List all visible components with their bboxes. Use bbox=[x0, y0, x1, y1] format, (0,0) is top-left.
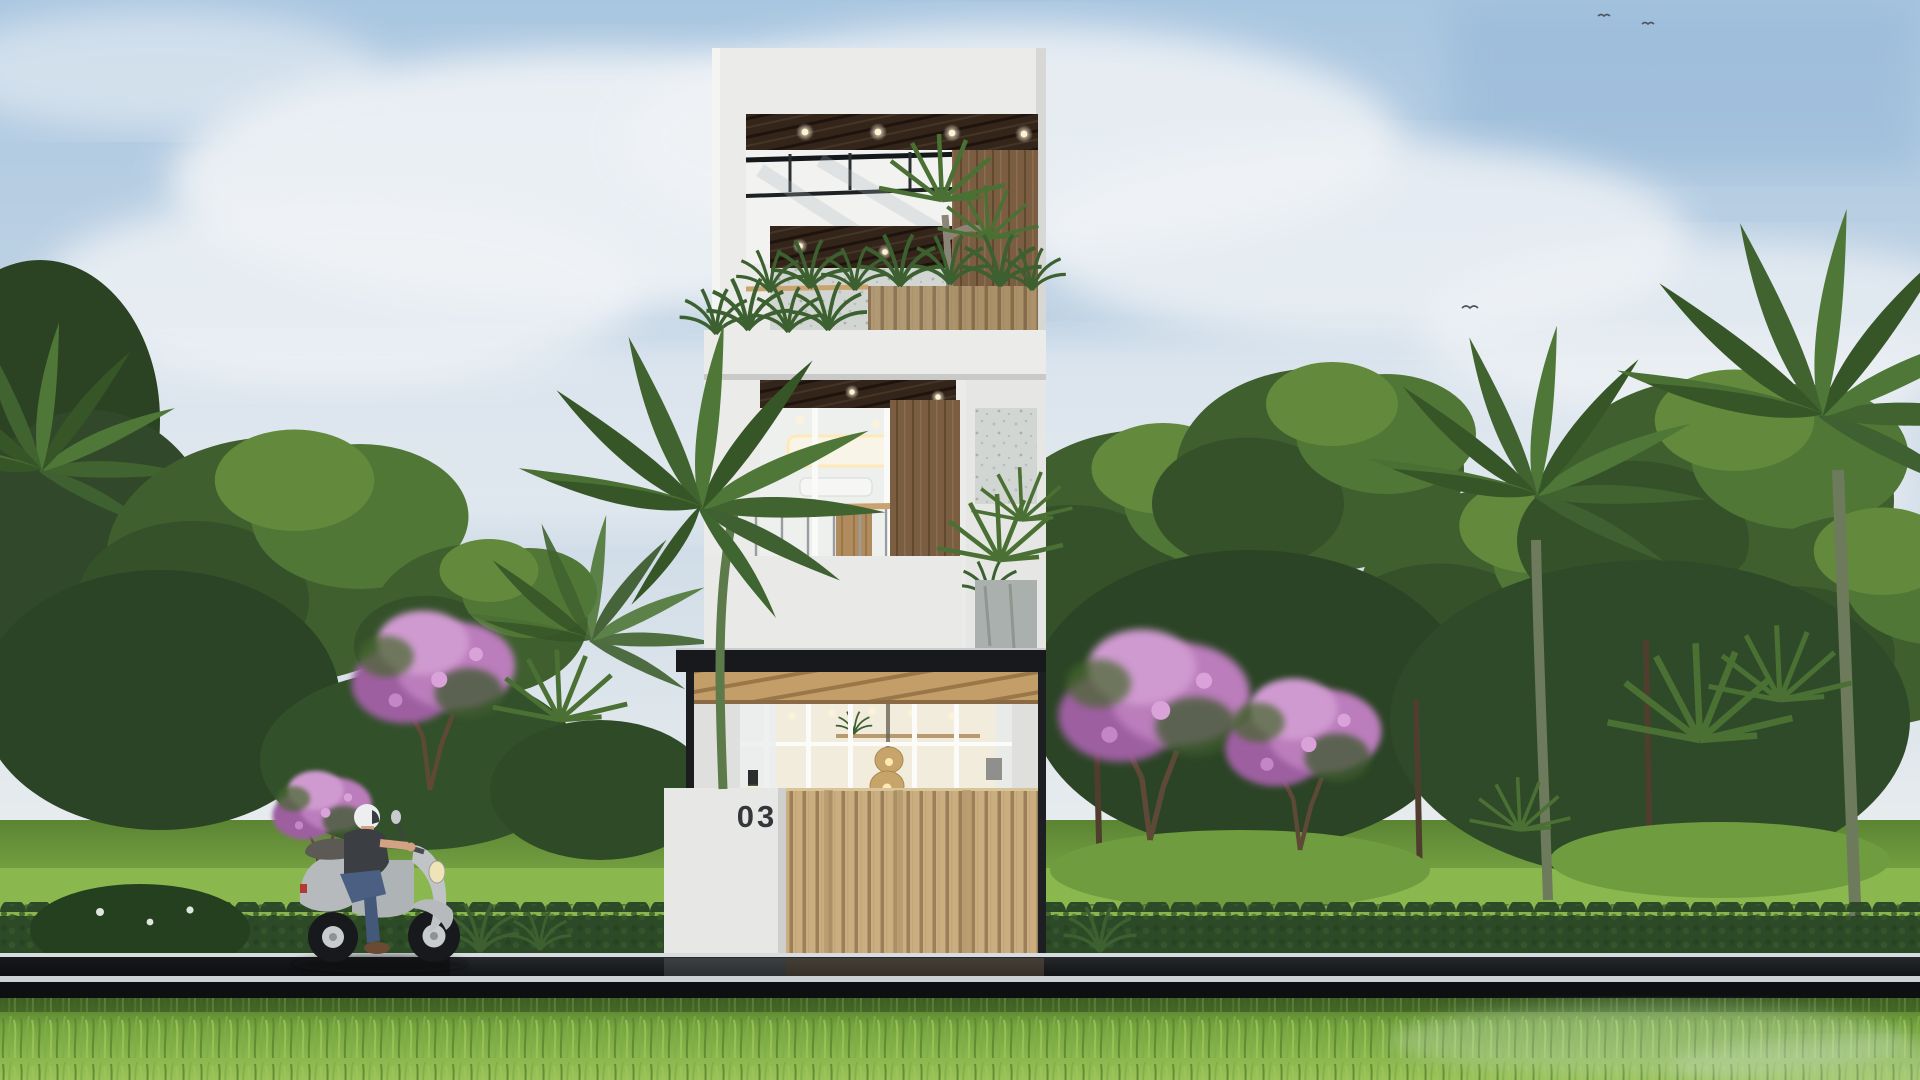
pillar-reflection bbox=[664, 958, 786, 976]
slab-shadow-line bbox=[704, 374, 1046, 380]
interior-ceiling-light bbox=[827, 708, 838, 719]
foreground-grass bbox=[0, 998, 1920, 1080]
gate-slat-variation bbox=[962, 790, 971, 956]
interior-downlight bbox=[870, 418, 883, 431]
pendant-bulb bbox=[885, 758, 893, 766]
interior-ceiling-light bbox=[867, 706, 878, 717]
slab-face bbox=[704, 330, 1046, 380]
transom-bar bbox=[740, 742, 1012, 746]
rear-hub bbox=[329, 933, 337, 941]
gate-slat-variation bbox=[894, 790, 903, 956]
downlight bbox=[869, 123, 887, 141]
interior-downlight bbox=[794, 414, 807, 427]
rider-arm bbox=[380, 843, 408, 846]
road-edge-line-far bbox=[0, 953, 1920, 957]
rider-shoe bbox=[364, 942, 390, 954]
lawn-gap bbox=[1550, 822, 1890, 898]
white-flower-dots bbox=[147, 919, 154, 926]
gate-slat-variation bbox=[824, 790, 833, 956]
curb-face bbox=[0, 982, 1920, 1000]
lawn-gap bbox=[1050, 830, 1430, 910]
gate-end-post bbox=[1038, 672, 1046, 958]
pergola-fascia bbox=[694, 700, 1046, 704]
white-flower-dots bbox=[186, 906, 193, 913]
gate-reflection bbox=[786, 958, 1044, 976]
downlight bbox=[1015, 125, 1033, 143]
house-number-plate: 03 bbox=[664, 788, 786, 958]
wood-slat-pergola-soffit bbox=[694, 672, 1046, 702]
road bbox=[0, 953, 1920, 1000]
architectural-render-scene: 03 bbox=[0, 0, 1920, 1080]
downlight bbox=[845, 385, 859, 399]
white-flower-dots bbox=[96, 908, 104, 916]
rider-hand bbox=[407, 843, 416, 852]
wall-sconce bbox=[748, 770, 758, 786]
front-hub bbox=[430, 932, 438, 940]
headlamp bbox=[429, 861, 445, 883]
road-edge-line-near bbox=[0, 976, 1920, 982]
canopy-black-slab bbox=[676, 650, 1046, 672]
blue-sky-patch bbox=[1450, 0, 1920, 170]
downlight bbox=[796, 123, 814, 141]
ac-unit bbox=[800, 478, 872, 496]
pillar-edge-shade bbox=[778, 788, 786, 958]
downlight bbox=[943, 124, 961, 142]
roof-soffit-wood bbox=[746, 114, 1038, 150]
tail-light bbox=[300, 884, 307, 893]
canopy-support-post bbox=[686, 672, 694, 790]
house-number: 03 bbox=[737, 799, 777, 834]
wall-art-frame bbox=[986, 758, 1002, 780]
interior-ceiling-light bbox=[787, 711, 798, 722]
mirror bbox=[391, 810, 401, 824]
